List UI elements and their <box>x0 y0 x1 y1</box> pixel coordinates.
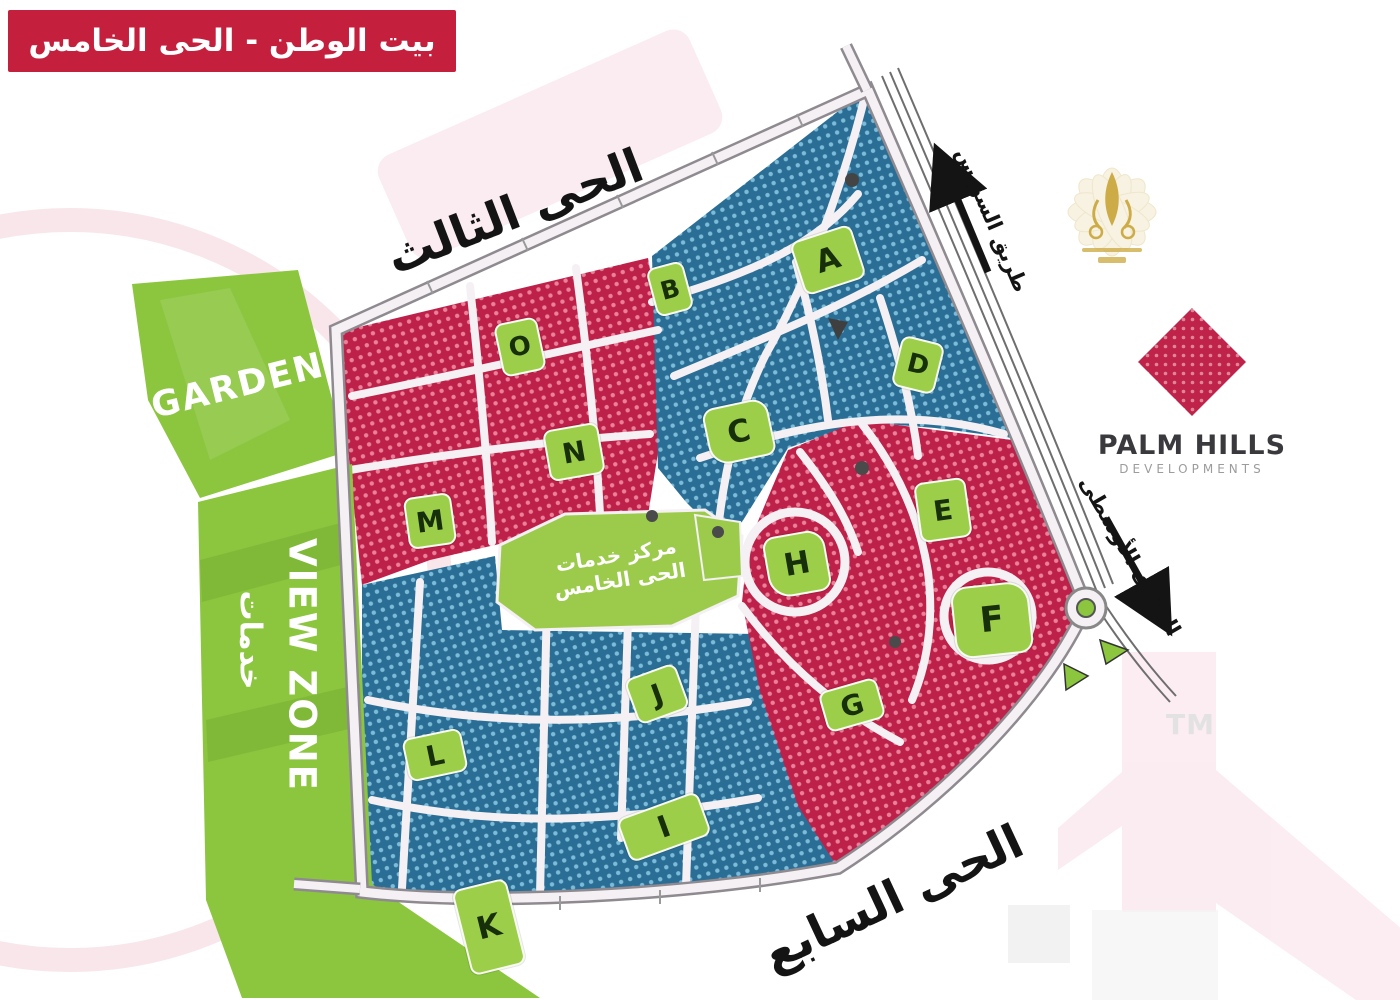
palm-hills-diamond-icon <box>1138 308 1246 416</box>
plot-marker-m: M <box>403 492 458 550</box>
lotus-flower-logo-icon <box>1068 168 1156 263</box>
view-zone-label-arabic: خدمات <box>233 591 268 690</box>
palm-hills-wordmark: PALM HILLS <box>1082 430 1302 461</box>
plot-marker-f: F <box>949 580 1034 660</box>
trademark-symbol: TM <box>1166 708 1215 741</box>
view-zone-label: VIEW ZONE <box>281 538 324 792</box>
title-banner: بيت الوطن - الحى الخامس <box>8 10 456 72</box>
palm-hills-developments-label: DEVELOPMENTS <box>1082 462 1302 476</box>
plot-marker-n: N <box>542 422 606 483</box>
masterplan-map <box>0 0 1400 1000</box>
plot-marker-e: E <box>913 477 973 544</box>
masterplan-canvas: بيت الوطن - الحى الخامس الحى الثالث الحى… <box>0 0 1400 1000</box>
